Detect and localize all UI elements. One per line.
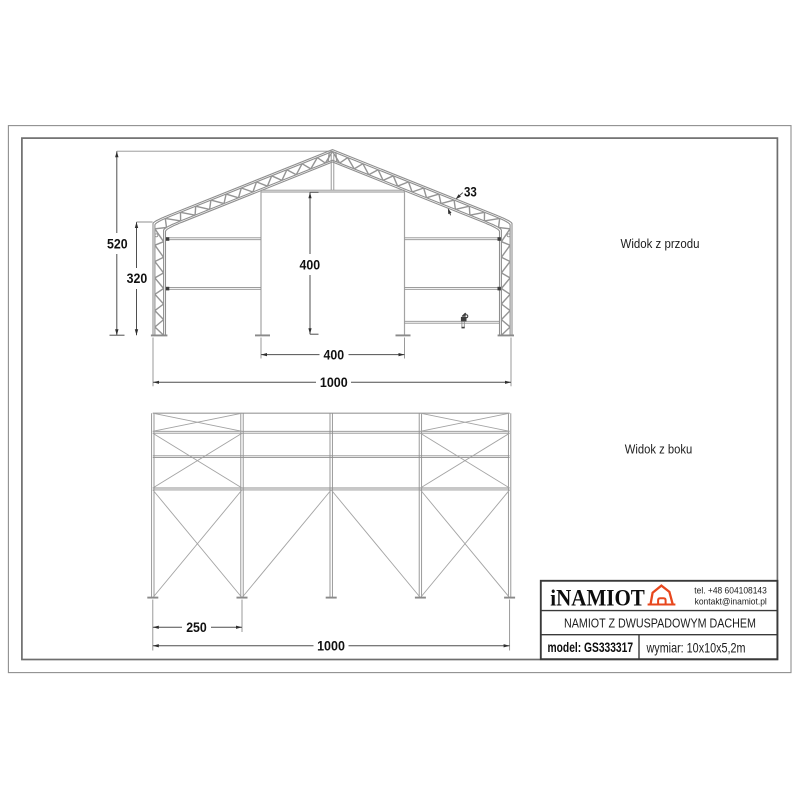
svg-text:tel. +48 604108143: tel. +48 604108143 xyxy=(694,585,767,596)
svg-text:1000: 1000 xyxy=(320,375,348,391)
svg-text:33: 33 xyxy=(464,184,477,200)
svg-text:400: 400 xyxy=(300,257,321,273)
svg-text:wymiar: 10x10x5,2m: wymiar: 10x10x5,2m xyxy=(646,640,746,655)
svg-text:Widok z przodu: Widok z przodu xyxy=(621,237,700,251)
svg-text:320: 320 xyxy=(127,271,148,287)
svg-text:520: 520 xyxy=(107,237,128,253)
svg-text:Widok z boku: Widok z boku xyxy=(625,443,693,457)
svg-text:1000: 1000 xyxy=(317,639,345,655)
svg-text:kontakt@inamiot.pl: kontakt@inamiot.pl xyxy=(695,595,767,606)
svg-text:NAMIOT Z DWUSPADOWYM DACHEM: NAMIOT Z DWUSPADOWYM DACHEM xyxy=(564,616,756,631)
svg-text:model: GS333317: model: GS333317 xyxy=(548,640,634,655)
svg-text:iNAMIOT: iNAMIOT xyxy=(550,586,645,612)
svg-text:400: 400 xyxy=(324,347,345,363)
svg-text:250: 250 xyxy=(186,620,207,636)
